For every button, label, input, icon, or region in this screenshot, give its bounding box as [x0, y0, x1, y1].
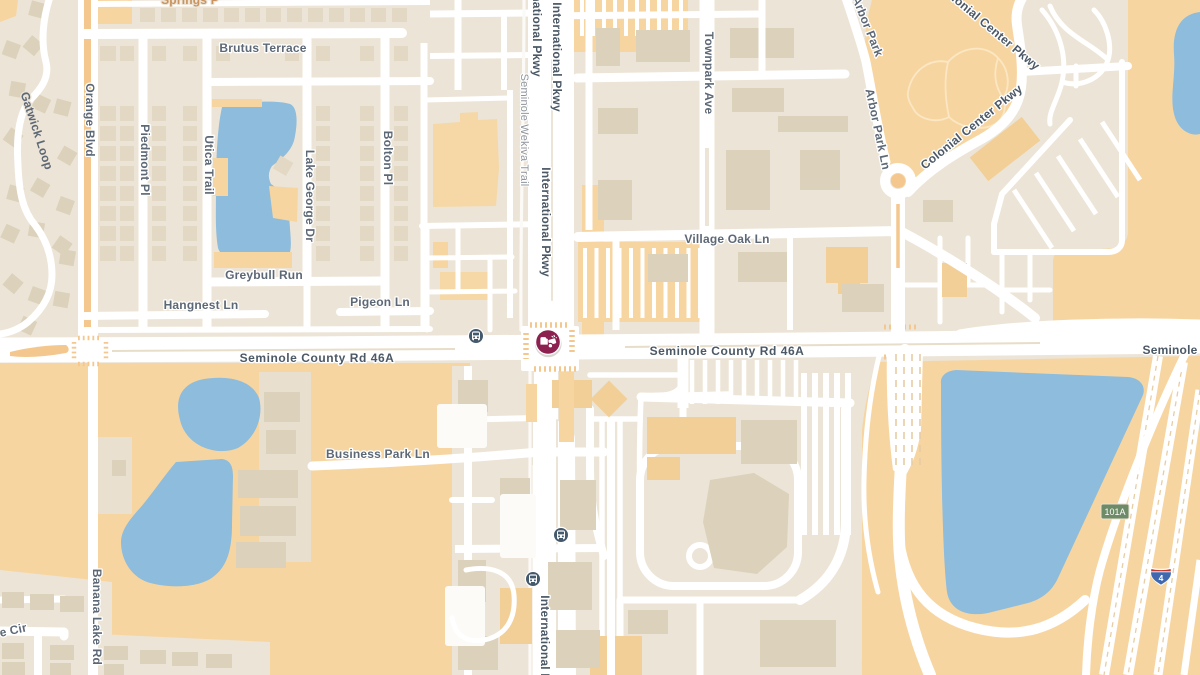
svg-text:Seminole Co: Seminole Co	[1143, 343, 1200, 357]
svg-text:Bolton Pl: Bolton Pl	[381, 131, 395, 185]
svg-text:Banana Lake Rd: Banana Lake Rd	[90, 569, 104, 665]
svg-text:Village Oak Ln: Village Oak Ln	[684, 232, 769, 246]
svg-text:International Pkwy: International Pkwy	[550, 2, 564, 112]
svg-text:Lake George Dr: Lake George Dr	[303, 150, 317, 242]
svg-text:Utica Trail: Utica Trail	[202, 135, 216, 195]
svg-text:Pigeon Ln: Pigeon Ln	[350, 295, 410, 309]
svg-text:4: 4	[1159, 573, 1164, 583]
svg-text:Townpark Ave: Townpark Ave	[702, 32, 716, 115]
svg-text:Hangnest Ln: Hangnest Ln	[164, 298, 239, 312]
svg-text:101A: 101A	[1104, 507, 1125, 517]
svg-text:Seminole County Rd 46A: Seminole County Rd 46A	[240, 351, 395, 365]
svg-text:Brutus Terrace: Brutus Terrace	[219, 41, 306, 55]
svg-text:Seminole County Rd 46A: Seminole County Rd 46A	[650, 344, 805, 358]
svg-text:International Pkwy: International Pkwy	[530, 0, 544, 77]
svg-text:Orange Blvd: Orange Blvd	[83, 83, 97, 157]
svg-text:Seminole Wekiva Trail: Seminole Wekiva Trail	[518, 74, 530, 187]
svg-text:Piedmont Pl: Piedmont Pl	[138, 124, 152, 196]
svg-text:International Pkwy: International Pkwy	[539, 167, 553, 277]
svg-text:Greybull Run: Greybull Run	[225, 268, 303, 282]
svg-text:Springs P: Springs P	[161, 0, 219, 7]
svg-text:International Pkwy: International Pkwy	[538, 595, 552, 675]
svg-text:Business Park Ln: Business Park Ln	[326, 447, 430, 461]
